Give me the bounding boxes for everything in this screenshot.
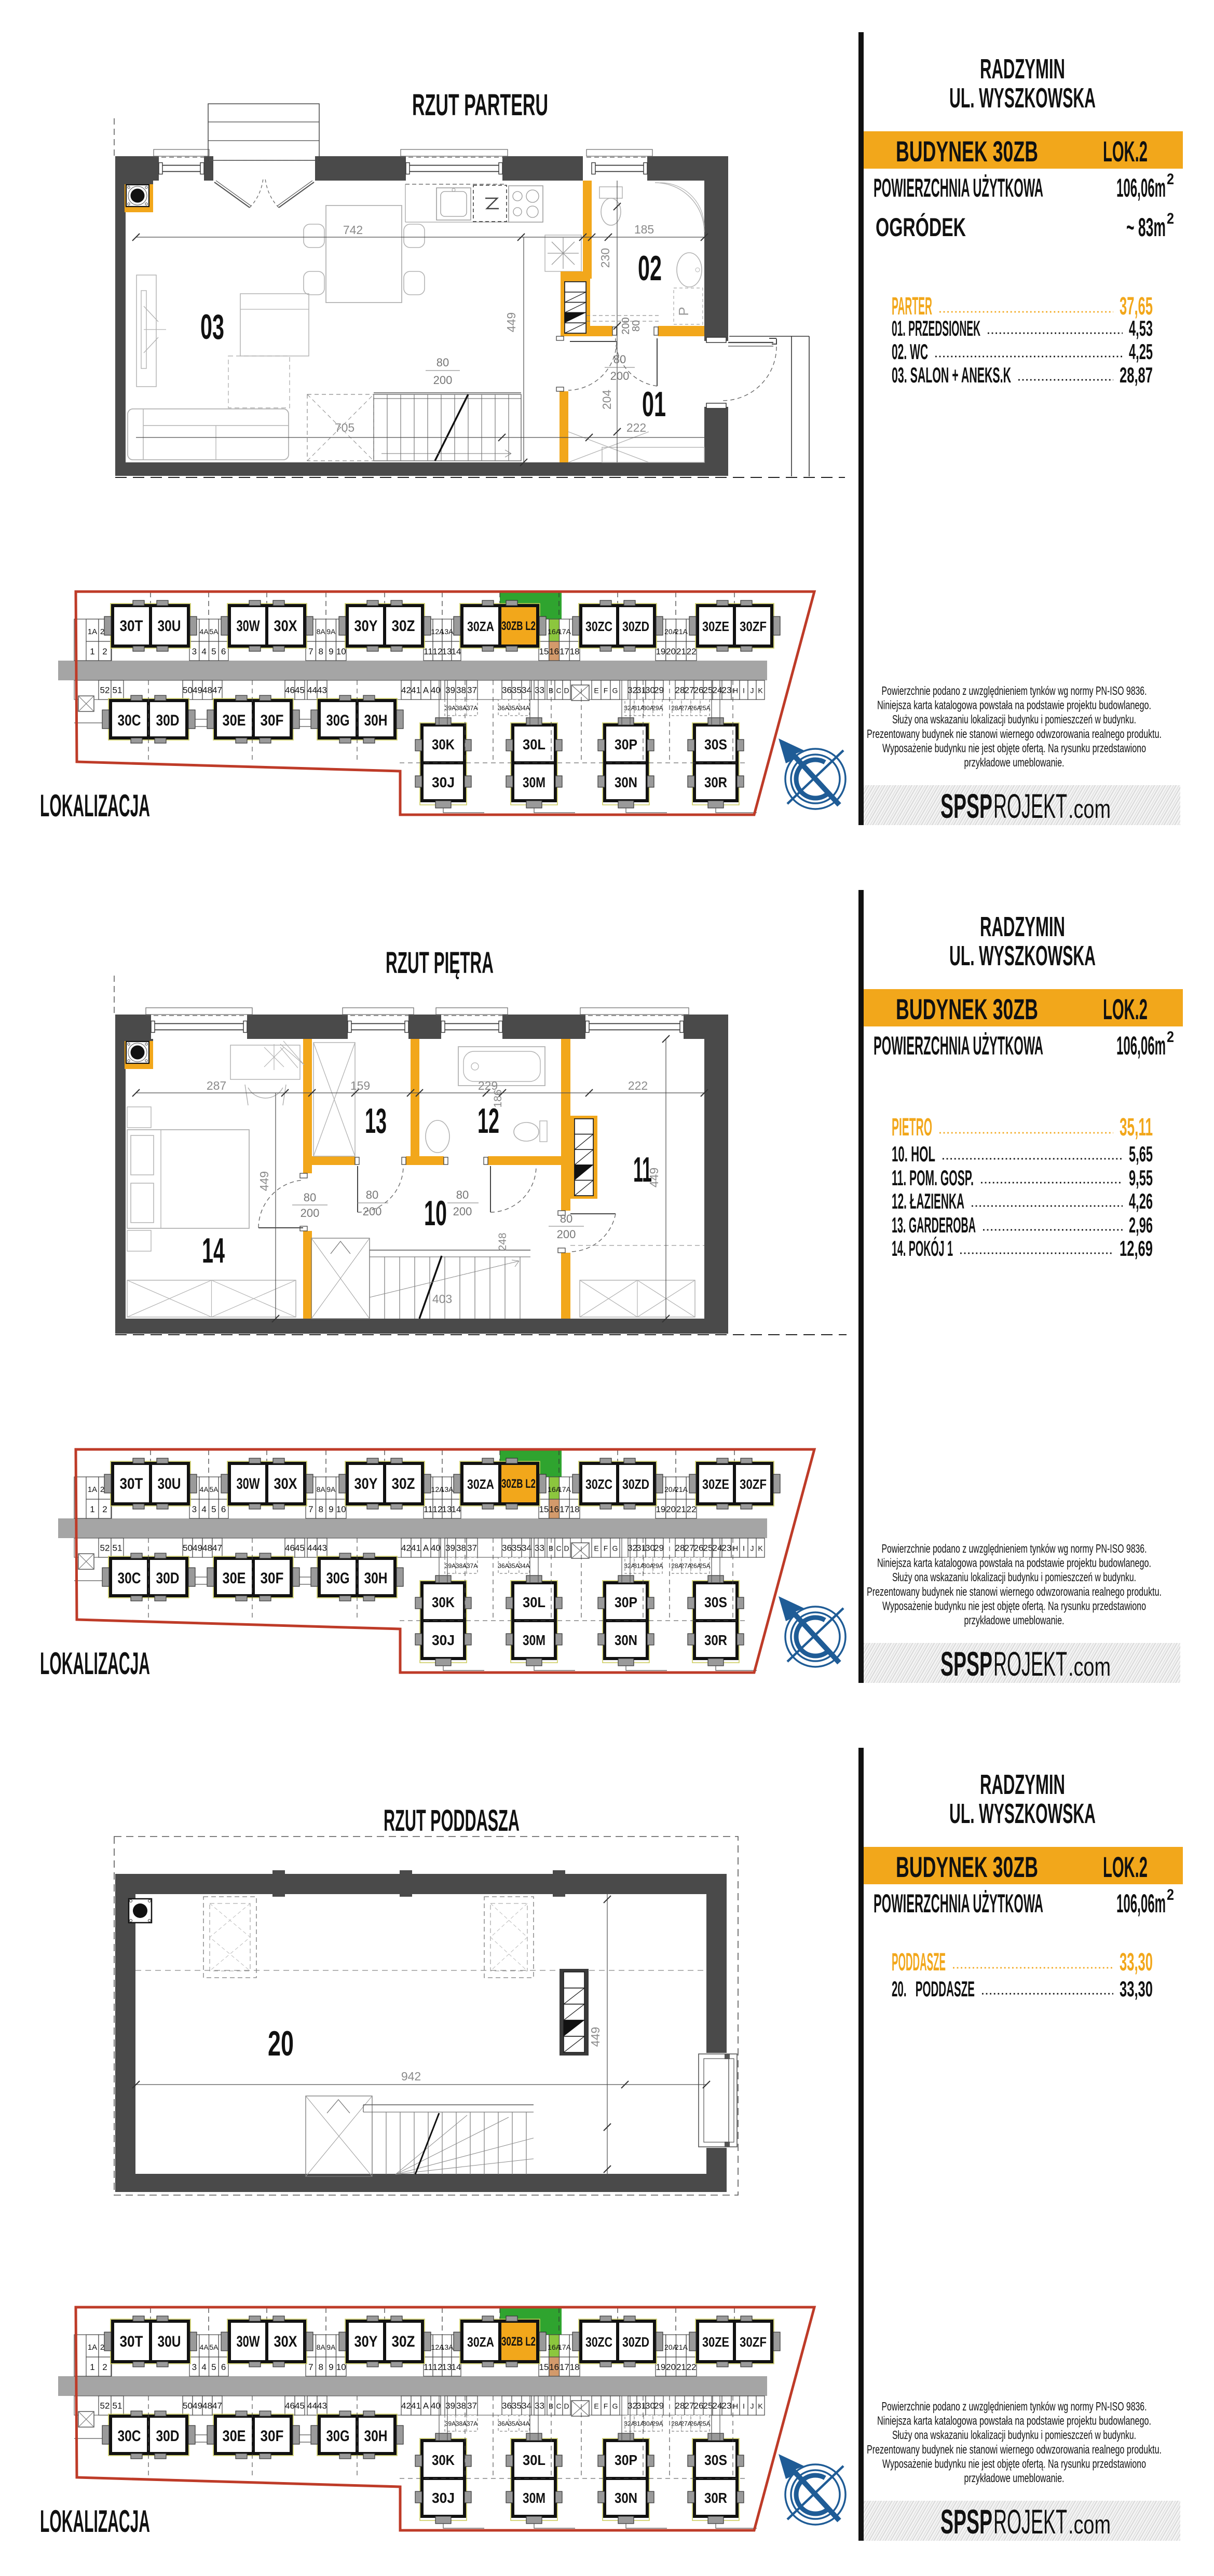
svg-text:Służy ona wskazaniu lokalizacj: Służy ona wskazaniu lokalizacji budynku … (892, 712, 1136, 726)
svg-text:20. PODDASZE: 20. PODDASZE (892, 1977, 975, 2001)
svg-text:Prezentowany budynek nie stano: Prezentowany budynek nie stanowi wierneg… (867, 1585, 1162, 1598)
svg-text:.com: .com (1068, 1652, 1111, 1681)
svg-text:03: 03 (200, 307, 224, 347)
svg-text:03. SALON + ANEKS.K: 03. SALON + ANEKS.K (892, 363, 1011, 387)
svg-text:80: 80 (613, 353, 626, 366)
svg-text:RADZYMIN: RADZYMIN (980, 1769, 1065, 1800)
svg-text:P: P (676, 307, 691, 316)
svg-text:.com: .com (1068, 2510, 1111, 2539)
svg-text:230: 230 (598, 248, 612, 268)
svg-text:Prezentowany budynek nie stano: Prezentowany budynek nie stanowi wierneg… (867, 727, 1162, 741)
svg-text:SPSP: SPSP (940, 787, 992, 825)
svg-text:POWIERZCHNIA UŻYTKOWA: POWIERZCHNIA UŻYTKOWA (874, 173, 1043, 202)
svg-text:9,55: 9,55 (1129, 1166, 1153, 1190)
svg-text:222: 222 (626, 421, 646, 434)
svg-text:185: 185 (634, 223, 654, 236)
svg-text:01: 01 (642, 385, 666, 424)
svg-text:449: 449 (647, 1168, 661, 1187)
svg-text:SPSP: SPSP (940, 2502, 992, 2541)
svg-text:RZUT PARTERU: RZUT PARTERU (412, 88, 548, 122)
svg-text:SPSP: SPSP (940, 1645, 992, 1683)
svg-text:80: 80 (304, 1191, 316, 1204)
svg-text:186: 186 (492, 1089, 504, 1107)
svg-text:.com: .com (1068, 794, 1111, 824)
svg-text:ROJEKT: ROJEKT (993, 1645, 1067, 1683)
svg-text:14: 14 (202, 1231, 225, 1270)
svg-text:Niniejsza karta katalogowa pow: Niniejsza karta katalogowa powstała na p… (877, 2414, 1151, 2428)
svg-text:11. POM. GOSP.: 11. POM. GOSP. (892, 1166, 974, 1190)
svg-text:RZUT PIĘTRA: RZUT PIĘTRA (386, 946, 494, 980)
svg-text:204: 204 (600, 390, 613, 410)
svg-text:LOK.2: LOK.2 (1103, 135, 1148, 168)
svg-text:Wyposażenie budynku nie jest o: Wyposażenie budynku nie jest objęte ofer… (882, 1599, 1146, 1612)
svg-text:80: 80 (560, 1212, 572, 1225)
svg-text:10. HOL: 10. HOL (892, 1142, 935, 1166)
svg-text:RZUT PODDASZA: RZUT PODDASZA (384, 1804, 520, 1838)
svg-text:5,65: 5,65 (1129, 1142, 1153, 1166)
svg-text:Wyposażenie budynku nie jest o: Wyposażenie budynku nie jest objęte ofer… (882, 2457, 1146, 2470)
svg-text:35,11: 35,11 (1120, 1114, 1153, 1141)
svg-text:Niniejsza karta katalogowa pow: Niniejsza karta katalogowa powstała na p… (877, 1556, 1151, 1570)
svg-text:POWIERZCHNIA UŻYTKOWA: POWIERZCHNIA UŻYTKOWA (874, 1889, 1043, 1918)
svg-text:200: 200 (433, 374, 453, 387)
svg-text:200: 200 (363, 1205, 382, 1218)
svg-text:przykładowe umeblowanie.: przykładowe umeblowanie. (964, 2471, 1065, 2485)
svg-text:LOK.2: LOK.2 (1103, 1851, 1148, 1883)
svg-text:13. GARDEROBA: 13. GARDEROBA (892, 1213, 976, 1237)
svg-text:ROJEKT: ROJEKT (993, 2502, 1067, 2541)
svg-text:BUDYNEK 30ZB: BUDYNEK 30ZB (896, 993, 1038, 1025)
svg-text:200: 200 (620, 317, 632, 334)
svg-text:02: 02 (638, 249, 662, 288)
svg-text:200: 200 (301, 1207, 320, 1220)
svg-text:449: 449 (504, 312, 518, 332)
svg-text:Powierzchnie podano z uwzględn: Powierzchnie podano z uwzględnieniem tyn… (882, 2400, 1147, 2413)
svg-text:80: 80 (631, 320, 642, 332)
svg-text:200: 200 (453, 1205, 472, 1218)
svg-text:RADZYMIN: RADZYMIN (980, 53, 1065, 85)
svg-text:106,06m: 106,06m (1116, 1031, 1166, 1060)
svg-text:ROJEKT: ROJEKT (993, 787, 1067, 825)
svg-text:BUDYNEK 30ZB: BUDYNEK 30ZB (896, 135, 1038, 168)
svg-text:01. PRZEDSIONEK: 01. PRZEDSIONEK (892, 316, 980, 340)
svg-text:248: 248 (497, 1232, 509, 1251)
svg-text:33,30: 33,30 (1120, 1949, 1153, 1976)
svg-text:Służy ona wskazaniu lokalizacj: Służy ona wskazaniu lokalizacji budynku … (892, 1570, 1136, 1584)
svg-text:Powierzchnie podano z uwzględn: Powierzchnie podano z uwzględnieniem tyn… (882, 1542, 1147, 1555)
svg-text:OGRÓDEK: OGRÓDEK (876, 213, 966, 242)
svg-text:4,25: 4,25 (1129, 339, 1153, 364)
svg-text:80: 80 (366, 1188, 378, 1201)
svg-text:2: 2 (1167, 210, 1174, 227)
svg-text:28,87: 28,87 (1120, 363, 1153, 387)
svg-text:Wyposażenie budynku nie jest o: Wyposażenie budynku nie jest objęte ofer… (882, 741, 1146, 755)
svg-text:80: 80 (437, 356, 449, 369)
svg-text:przykładowe umeblowanie.: przykładowe umeblowanie. (964, 1613, 1065, 1627)
svg-text:80: 80 (456, 1188, 469, 1201)
svg-text:222: 222 (628, 1079, 648, 1092)
svg-text:12. ŁAZIENKA: 12. ŁAZIENKA (892, 1189, 964, 1213)
svg-text:BUDYNEK 30ZB: BUDYNEK 30ZB (896, 1851, 1038, 1883)
svg-text:13: 13 (365, 1101, 387, 1141)
svg-text:POWIERZCHNIA UŻYTKOWA: POWIERZCHNIA UŻYTKOWA (874, 1031, 1043, 1060)
svg-text:403: 403 (432, 1292, 452, 1306)
svg-text:449: 449 (257, 1171, 271, 1191)
svg-text:705: 705 (335, 421, 354, 434)
svg-text:4,26: 4,26 (1129, 1189, 1153, 1213)
svg-text:PODDASZE: PODDASZE (892, 1949, 946, 1976)
svg-text:33,30: 33,30 (1120, 1977, 1153, 2001)
svg-text:Prezentowany budynek nie stano: Prezentowany budynek nie stanowi wierneg… (867, 2443, 1162, 2456)
svg-text:02. WC: 02. WC (892, 339, 928, 364)
svg-text:200: 200 (557, 1228, 576, 1241)
svg-text:RADZYMIN: RADZYMIN (980, 911, 1065, 942)
svg-text:942: 942 (401, 2070, 421, 2083)
svg-text:14. POKÓJ 1: 14. POKÓJ 1 (892, 1236, 953, 1260)
svg-text:2: 2 (1167, 171, 1174, 188)
svg-text:742: 742 (343, 223, 363, 237)
svg-text:10: 10 (424, 1194, 447, 1233)
svg-text:UL. WYSZKOWSKA: UL. WYSZKOWSKA (949, 1798, 1096, 1829)
svg-text:2: 2 (1167, 1886, 1174, 1903)
svg-text:~ 83m: ~ 83m (1126, 213, 1166, 242)
svg-text:106,06m: 106,06m (1116, 173, 1166, 202)
svg-text:UL. WYSZKOWSKA: UL. WYSZKOWSKA (949, 83, 1096, 114)
svg-text:2: 2 (1167, 1029, 1174, 1046)
svg-text:Niniejsza karta katalogowa pow: Niniejsza karta katalogowa powstała na p… (877, 698, 1151, 712)
svg-text:przykładowe umeblowanie.: przykładowe umeblowanie. (964, 756, 1065, 769)
svg-text:LOK.2: LOK.2 (1103, 993, 1148, 1025)
svg-text:159: 159 (350, 1079, 370, 1092)
svg-text:UL. WYSZKOWSKA: UL. WYSZKOWSKA (949, 940, 1096, 971)
svg-text:449: 449 (589, 2027, 602, 2047)
svg-text:287: 287 (207, 1079, 226, 1092)
svg-text:2,96: 2,96 (1129, 1213, 1153, 1237)
svg-text:Służy ona wskazaniu lokalizacj: Służy ona wskazaniu lokalizacji budynku … (892, 2428, 1136, 2442)
svg-text:12,69: 12,69 (1120, 1236, 1153, 1260)
svg-text:200: 200 (610, 369, 630, 382)
svg-text:20: 20 (268, 2024, 294, 2063)
svg-text:Powierzchnie podano z uwzględn: Powierzchnie podano z uwzględnieniem tyn… (882, 684, 1147, 697)
svg-text:PIETRO: PIETRO (892, 1114, 932, 1141)
svg-text:106,06m: 106,06m (1116, 1889, 1166, 1918)
svg-text:4,53: 4,53 (1129, 316, 1153, 340)
